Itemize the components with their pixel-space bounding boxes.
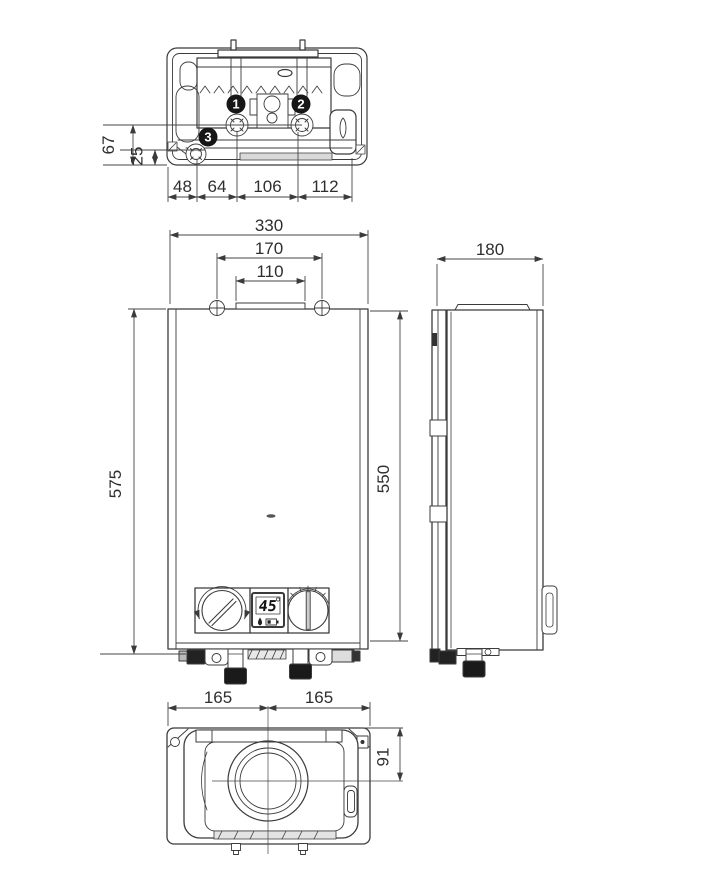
dim-25-label: 25 (128, 147, 147, 166)
corner-clip-right (356, 145, 365, 154)
water-heater-dimension-drawing: 1 2 3 67 25 48 64 106 112 (0, 0, 701, 893)
side-latch (344, 786, 357, 817)
mount-hole-left (171, 738, 180, 747)
gas-inlet-block (330, 110, 356, 154)
drain-manifold (248, 650, 286, 659)
top-view: 1 2 3 (167, 40, 367, 165)
flue-pin-left (231, 40, 236, 50)
bottom-connections (179, 649, 360, 684)
callout-1-badge: 1 (227, 95, 246, 114)
dim-180-label: 180 (476, 240, 504, 259)
dim-48-label: 48 (173, 177, 192, 196)
side-view-dimensions: 180 (437, 240, 543, 306)
dim-165-left-label: 165 (204, 688, 232, 707)
side-body (447, 310, 543, 650)
top-view-dimensions: 67 25 48 64 106 112 (99, 125, 352, 202)
bottom-body (184, 730, 358, 838)
back-mounting-plate (432, 310, 446, 655)
front-view: 45 (168, 301, 368, 685)
connection-point-3 (186, 144, 206, 164)
dim-112-label: 112 (311, 177, 338, 196)
mounting-screw-left (210, 301, 225, 316)
left-duct (176, 86, 199, 142)
right-elbow-duct (334, 64, 360, 96)
top-mounting-bar (218, 50, 318, 57)
dim-170-label: 170 (255, 239, 283, 258)
flue-collar (236, 303, 305, 309)
dim-110-label: 110 (256, 262, 283, 281)
callout-2-label: 2 (297, 97, 304, 112)
viewing-slot (267, 514, 276, 518)
callout-3-badge: 3 (199, 128, 218, 147)
dim-106-label: 106 (253, 177, 281, 196)
dim-64-label: 64 (208, 177, 227, 196)
knob-side-profile (542, 586, 557, 634)
wall-clip-lower (430, 506, 447, 522)
electrical-connector (187, 650, 205, 664)
dim-330-label: 330 (255, 216, 283, 235)
dim-575-label: 575 (106, 470, 125, 498)
side-bottom-connections (430, 649, 499, 678)
gas-valve-assembly (250, 94, 295, 128)
bottom-view (167, 728, 370, 855)
bottom-strip (214, 831, 336, 839)
top-cap (455, 305, 530, 311)
wall-clip-upper (430, 420, 447, 436)
callout-1-label: 1 (232, 97, 239, 112)
dim-91-label: 91 (374, 748, 393, 767)
side-view (430, 305, 557, 678)
callout-2-badge: 2 (292, 95, 311, 114)
temperature-value: 45 (257, 597, 278, 615)
gas-inlet-pipe (293, 649, 308, 664)
dim-165-right-label: 165 (305, 688, 333, 707)
flue-pin-right (300, 40, 305, 50)
dim-550-label: 550 (374, 465, 393, 493)
pipe-stub-right (299, 844, 308, 855)
technical-drawing-page: 1 2 3 67 25 48 64 106 112 (0, 0, 701, 893)
pipe-stub-left (232, 844, 241, 855)
mounting-screw-right (315, 301, 330, 316)
callout-3-label: 3 (204, 130, 211, 145)
water-inlet-pipe (228, 649, 243, 668)
dim-67-label: 67 (99, 136, 118, 155)
control-panel: 45 (195, 586, 329, 633)
